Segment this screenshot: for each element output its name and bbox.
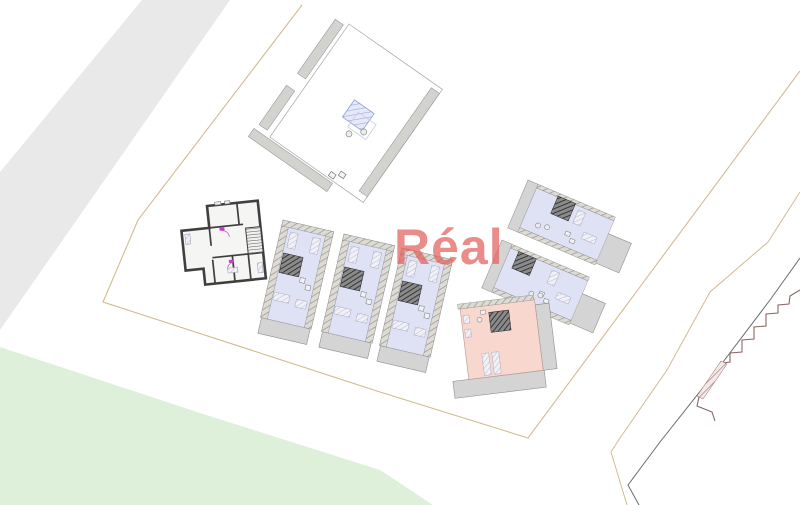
building-unit-pink — [444, 293, 560, 398]
building-large-courtyard — [248, 14, 442, 213]
stair-symbol — [398, 281, 422, 305]
watermark-text: Réal — [394, 219, 504, 275]
stair-symbol-house — [246, 227, 264, 254]
site-plan-canvas: Réal — [0, 0, 800, 505]
stair-symbol — [279, 253, 303, 277]
secondary-boundary-line — [611, 192, 800, 505]
lawn-area — [0, 347, 433, 505]
stair-symbol — [489, 310, 511, 332]
terrain-steps — [697, 290, 800, 421]
site-plan-drawing: Réal — [0, 0, 800, 505]
stair-symbol — [340, 267, 364, 291]
building-house-left — [179, 198, 266, 287]
road-strip — [0, 0, 230, 330]
building-rowhouse-1 — [257, 220, 334, 345]
